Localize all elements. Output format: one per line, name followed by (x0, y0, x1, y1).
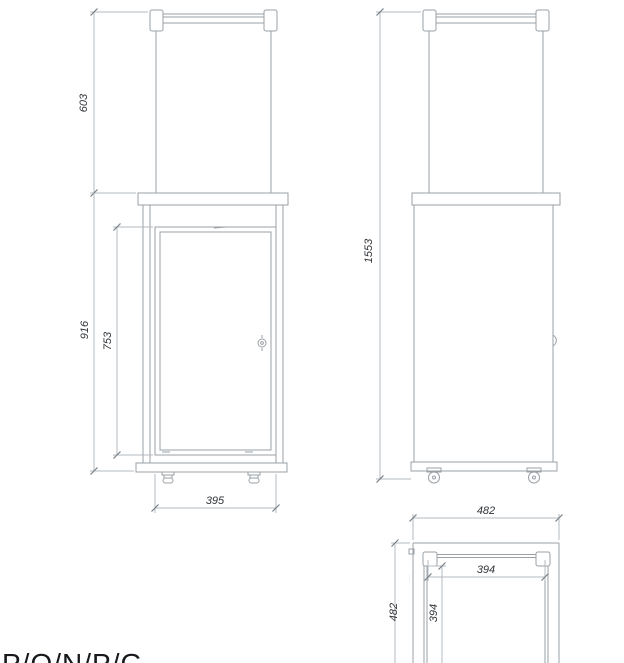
foot-left (162, 472, 174, 483)
end-cap-left (423, 10, 436, 31)
dim-label-603: 603 (78, 93, 90, 112)
dim-base-depth-482: 482 (388, 540, 410, 663)
dim-label-394-width: 394 (477, 564, 495, 576)
dim-base-width-482: 482 (410, 505, 563, 540)
model-label: P/O/N/P/G (2, 648, 302, 663)
door-frame (155, 227, 276, 455)
top-bar (150, 10, 277, 193)
dim-label-1553: 1553 (363, 238, 375, 263)
end-cap-left (150, 10, 163, 31)
dim-label-482-depth: 482 (388, 603, 400, 621)
dim-total-height-1553: 1553 (363, 9, 421, 483)
caster-wheel (429, 472, 440, 483)
caster-wheel (529, 472, 540, 483)
bar-tube (163, 14, 264, 23)
corner-post-right (536, 552, 550, 566)
dim-label-753: 753 (102, 331, 114, 350)
technical-drawing-page: 603 916 753 395 (0, 0, 624, 663)
top-panel (138, 193, 288, 205)
body-panel (414, 205, 553, 462)
hinge-bump (553, 335, 556, 346)
heater-dimension-drawing: 603 916 753 395 (0, 0, 624, 663)
base-plate (136, 463, 287, 472)
dim-door-753: 753 (102, 224, 153, 459)
micro-label: ····· (408, 574, 412, 582)
bar-tube (436, 14, 536, 23)
top-bar-side (423, 10, 549, 193)
dim-label-394-depth: 394 (428, 604, 440, 622)
base-plate (411, 462, 557, 471)
corner-post-left (423, 552, 437, 566)
door-knob (258, 335, 266, 351)
top-panel (412, 193, 560, 205)
dim-label-916: 916 (79, 320, 91, 339)
body-panel (143, 205, 283, 463)
dim-label-395: 395 (206, 495, 225, 507)
dim-label-482-width: 482 (477, 505, 495, 517)
glass-door (155, 227, 276, 455)
dim-top-section-603: 603 (78, 9, 148, 197)
dim-body-width-394: 394 (425, 560, 549, 581)
dim-width-395: 395 (152, 474, 280, 513)
top-view: ····· 482 394 482 (388, 505, 563, 663)
foot-right (248, 472, 260, 483)
glass-panel (160, 232, 271, 450)
end-cap-right (264, 10, 277, 31)
front-view: 603 916 753 395 (78, 9, 288, 514)
side-view: 1553 (363, 9, 560, 484)
end-cap-right (536, 10, 549, 31)
dim-body-depth-394: 394 (428, 563, 446, 663)
